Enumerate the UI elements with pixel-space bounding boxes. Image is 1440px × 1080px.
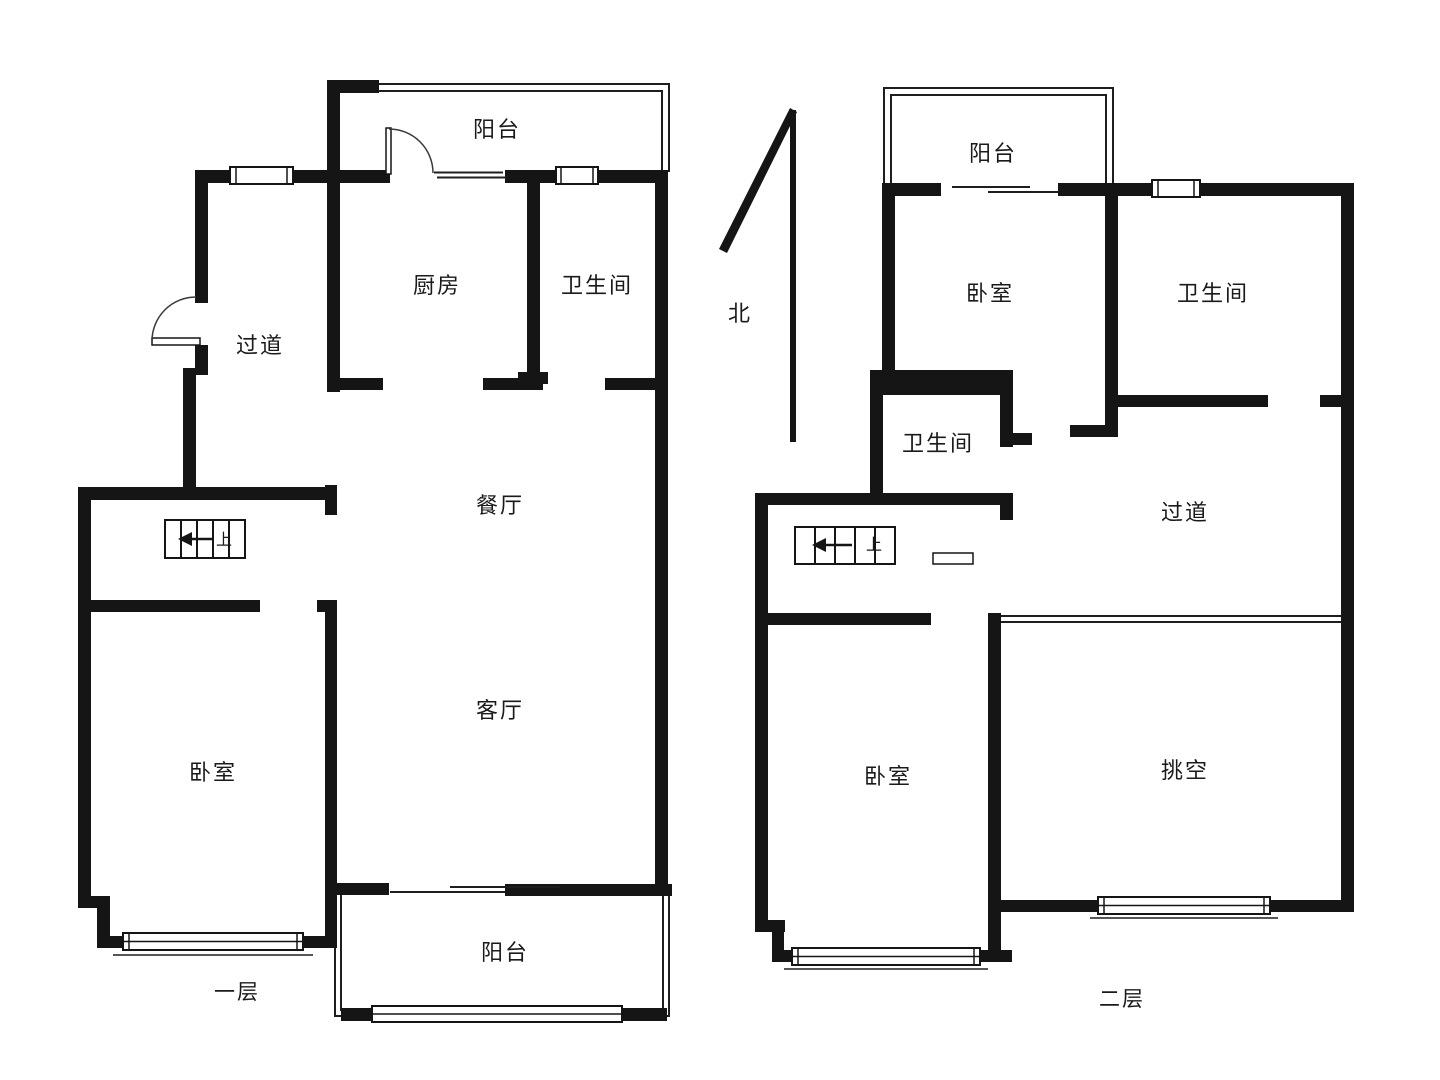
floor1-kitchen-label: 厨房 <box>413 273 461 298</box>
wall-segment <box>622 1008 667 1021</box>
floor1-stairs: 上 <box>165 520 245 558</box>
balcony-inner-line <box>891 95 1106 183</box>
wall-segment <box>870 370 1010 395</box>
window <box>113 933 313 955</box>
floor1-balcony-top-outline <box>379 84 669 172</box>
wall-segment <box>108 936 124 948</box>
window <box>1090 897 1278 918</box>
wall-segment <box>1118 395 1268 407</box>
north-indicator: 北 <box>719 108 797 442</box>
wall-segment <box>1001 900 1099 912</box>
wall-segment <box>655 170 668 893</box>
floor2-bathroom-small-label: 卫生间 <box>902 431 974 456</box>
wall-segment <box>1013 433 1032 445</box>
wall-segment <box>78 487 337 500</box>
floor2-void-label: 挑空 <box>1161 758 1209 783</box>
wall-segment <box>882 183 895 383</box>
floor2-stairs: 上 <box>795 527 895 564</box>
floor2-name: 二层 <box>1099 988 1145 1011</box>
wall-segment <box>1105 185 1118 437</box>
north-label: 北 <box>728 301 752 326</box>
floorplan-svg: 上 阳台 厨房 卫生间 过道 餐厅 客厅 卧室 阳台 一层 北 <box>0 0 1440 1080</box>
floor2-stairs-up-label: 上 <box>866 536 882 554</box>
wall-segment <box>341 1008 372 1021</box>
floor1-living-label: 客厅 <box>476 698 524 723</box>
floor1-labels: 阳台 厨房 卫生间 过道 餐厅 客厅 卧室 阳台 一层 <box>189 117 633 1004</box>
north-arrow-diagonal <box>719 108 797 253</box>
wall-segment <box>1270 900 1354 912</box>
wall-segment <box>527 170 540 384</box>
wall-segment <box>195 345 208 375</box>
floor2-balcony-label: 阳台 <box>969 141 1017 166</box>
wall-segment <box>78 896 110 908</box>
wall-segment <box>1000 493 1013 520</box>
floor2-bedroom-south-label: 卧室 <box>864 764 912 789</box>
wall-segment <box>325 883 389 895</box>
wall-segment <box>755 493 875 505</box>
window <box>230 167 293 184</box>
wall-segment <box>1341 183 1354 912</box>
wall-segment <box>988 613 1001 962</box>
floor1-balcony-bottom-label: 阳台 <box>481 940 529 965</box>
wall-segment <box>755 613 931 625</box>
threshold <box>933 553 973 564</box>
window <box>556 167 598 184</box>
floor2-plan: 上 阳台 卧室 卫生间 卫生间 过道 卧室 挑空 二层 <box>755 88 1354 1011</box>
floor2-bedroom-north-label: 卧室 <box>966 281 1014 306</box>
floor1-doors <box>152 128 433 345</box>
floor2-void-boundary <box>1001 616 1341 622</box>
floor1-name: 一层 <box>214 981 260 1004</box>
wall-segment <box>293 170 390 183</box>
wall-segment <box>1200 183 1354 196</box>
balcony-door <box>386 128 433 174</box>
wall-segment <box>183 368 196 490</box>
wall-segment <box>195 170 208 303</box>
wall-segment <box>78 487 91 908</box>
wall-segment <box>325 600 337 948</box>
entry-door <box>152 297 200 345</box>
floor2-balcony-outline <box>884 88 1113 183</box>
wall-segment <box>605 378 668 390</box>
wall-segment <box>1070 425 1105 437</box>
floor1-stairs-up-label: 上 <box>216 531 232 549</box>
floorplan-canvas: 上 阳台 厨房 卫生间 过道 餐厅 客厅 卧室 阳台 一层 北 <box>0 0 1440 1080</box>
wall-segment <box>327 80 340 392</box>
wall-segment <box>483 378 543 390</box>
floor2-hallway-label: 过道 <box>1161 500 1209 525</box>
balcony-outer-line <box>884 88 1113 183</box>
floor1-plan: 上 阳台 厨房 卫生间 过道 餐厅 客厅 卧室 阳台 一层 <box>78 80 672 1022</box>
floor2-walls <box>755 183 1354 962</box>
sliding-door <box>952 187 1058 192</box>
floor1-bathroom-label: 卫生间 <box>561 273 633 298</box>
wall-segment <box>870 370 883 505</box>
floor1-dining-label: 餐厅 <box>476 493 524 518</box>
wall-segment <box>325 485 337 515</box>
wall-segment <box>1000 370 1013 447</box>
window <box>1152 180 1200 197</box>
floor1-hallway-label: 过道 <box>236 333 284 358</box>
wall-segment <box>327 378 383 390</box>
wall-segment <box>870 493 1012 505</box>
wall-segment <box>1320 395 1354 407</box>
balcony-outer-line <box>379 84 669 172</box>
floor2-labels: 阳台 卧室 卫生间 卫生间 过道 卧室 挑空 二层 <box>864 141 1249 1011</box>
window <box>372 1006 622 1022</box>
sliding-window <box>434 173 507 178</box>
wall-segment <box>505 884 672 896</box>
floor2-bathroom-east-label: 卫生间 <box>1177 281 1249 306</box>
wall-segment <box>772 950 794 962</box>
wall-segment <box>80 600 260 612</box>
floor1-balcony-top-label: 阳台 <box>473 117 521 142</box>
floor1-bedroom-label: 卧室 <box>189 760 237 785</box>
window <box>784 948 988 969</box>
wall-segment <box>755 493 768 930</box>
